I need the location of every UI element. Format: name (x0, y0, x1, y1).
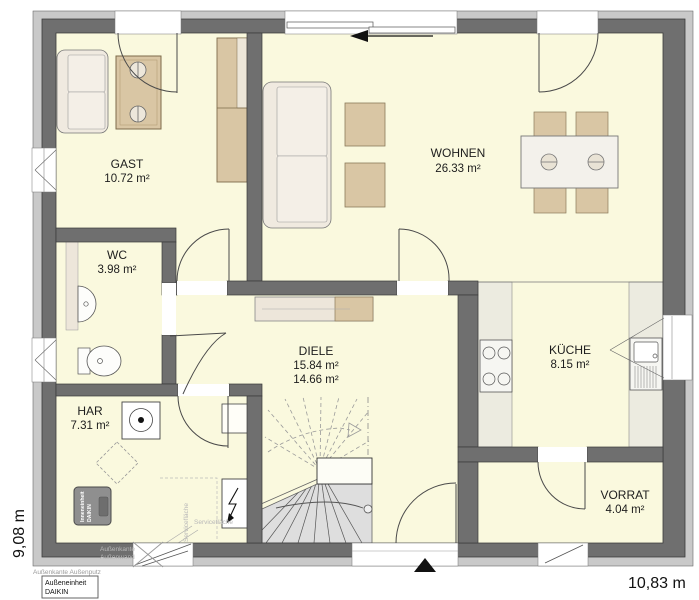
dining-chair (534, 112, 566, 138)
ventilation-dot (138, 417, 144, 423)
wall-wc-east-lower (162, 335, 176, 384)
har-label: HAR (77, 404, 103, 418)
wall-wc-east-upper (162, 242, 176, 283)
gast-label: GAST (111, 157, 144, 171)
wc-toilet (87, 346, 121, 376)
wc-prewall (66, 234, 78, 330)
edge-wall-text-1: Außenkante (100, 546, 135, 553)
dimension-bottom: 10,83 m (628, 575, 686, 592)
wall-kueche-vorrat-w (458, 447, 538, 462)
diele-label: DIELE (299, 344, 334, 358)
edge-plaster-text: Außenkante Außenputz (33, 569, 101, 576)
outdoor-unit-text-2: DAIKIN (45, 589, 68, 596)
wohnen-door-opening (397, 281, 448, 295)
diele-sideboard (255, 297, 373, 321)
gast-wardrobe-section (237, 38, 247, 108)
kueche-window (663, 315, 692, 380)
entrance-door-opening (352, 543, 458, 566)
wc-door-opening (162, 283, 176, 335)
gast-exterior-door-opening (115, 11, 181, 34)
har-door-opening (178, 384, 229, 396)
dining-chair (534, 187, 566, 213)
kueche-area: 8.15 m² (551, 359, 590, 371)
wall-wc-har (56, 384, 178, 396)
wall-gast-wohnen (247, 33, 262, 281)
wohnen-side-table (345, 163, 385, 207)
daikin-indoor-panel (99, 497, 108, 516)
stair-newel-post (364, 505, 372, 513)
edge-wall-text-2: Außenwand (100, 554, 135, 561)
vorrat-label: VORRAT (600, 488, 650, 502)
outdoor-unit-text-1: Außeneinheit (45, 580, 86, 587)
wohnen-sofa-cushion (277, 87, 327, 156)
diele-area1: 15.84 m² (293, 360, 339, 372)
sink-bowl (634, 342, 658, 362)
floorplan-page: Inneneinheit DAIKIN (0, 0, 699, 600)
service-text-v: Servicefläche (183, 503, 190, 542)
sliding-panel (369, 27, 455, 33)
wall-box (222, 404, 248, 433)
wall-gast-wc (56, 228, 176, 242)
gast-sofa-cushion (68, 92, 105, 129)
wc-label: WC (107, 248, 127, 262)
sliding-panel (287, 22, 373, 28)
gast-door-opening (177, 281, 227, 295)
wohnen-area: 26.33 m² (435, 163, 481, 175)
wall-kueche-west (458, 295, 478, 447)
service-label-horizontal: Servicefläche (194, 519, 233, 526)
floorplan-svg: Inneneinheit DAIKIN (0, 0, 699, 600)
har-area: 7.31 m² (71, 420, 110, 432)
stair-landing (317, 458, 372, 484)
wc-area: 3.98 m² (98, 264, 137, 276)
service-label-vertical: Servicefläche (183, 503, 190, 542)
wall-diele-north-stub (448, 281, 478, 295)
wall-diele-north-b (227, 281, 397, 295)
wohnen-side-table (345, 103, 385, 146)
terrace-door-opening (537, 11, 598, 34)
wall-vorrat-west (458, 462, 478, 543)
dining-chair (576, 112, 608, 138)
wall-har-stub (229, 384, 262, 396)
indoor-unit-text-2: DAIKIN (87, 504, 93, 522)
vorrat-door-opening (538, 447, 587, 462)
wall-vorrat-north-e (587, 447, 663, 462)
wohnen-label: WOHNEN (431, 146, 486, 160)
vorrat-area: 4.04 m² (606, 504, 645, 516)
gast-area: 10.72 m² (104, 173, 150, 185)
wohnen-sofa-cushion (277, 156, 327, 222)
kueche-label: KÜCHE (549, 343, 591, 357)
dimension-left-text: 9,08 m (11, 509, 28, 558)
diele-area2: 14.66 m² (293, 374, 339, 386)
wall-stair-west (247, 396, 262, 543)
dining-chair (576, 187, 608, 213)
dimension-left: 9,08 m (11, 509, 28, 558)
gast-sofa-cushion (68, 55, 105, 92)
indoor-unit-text-1: Inneneinheit (80, 491, 86, 522)
